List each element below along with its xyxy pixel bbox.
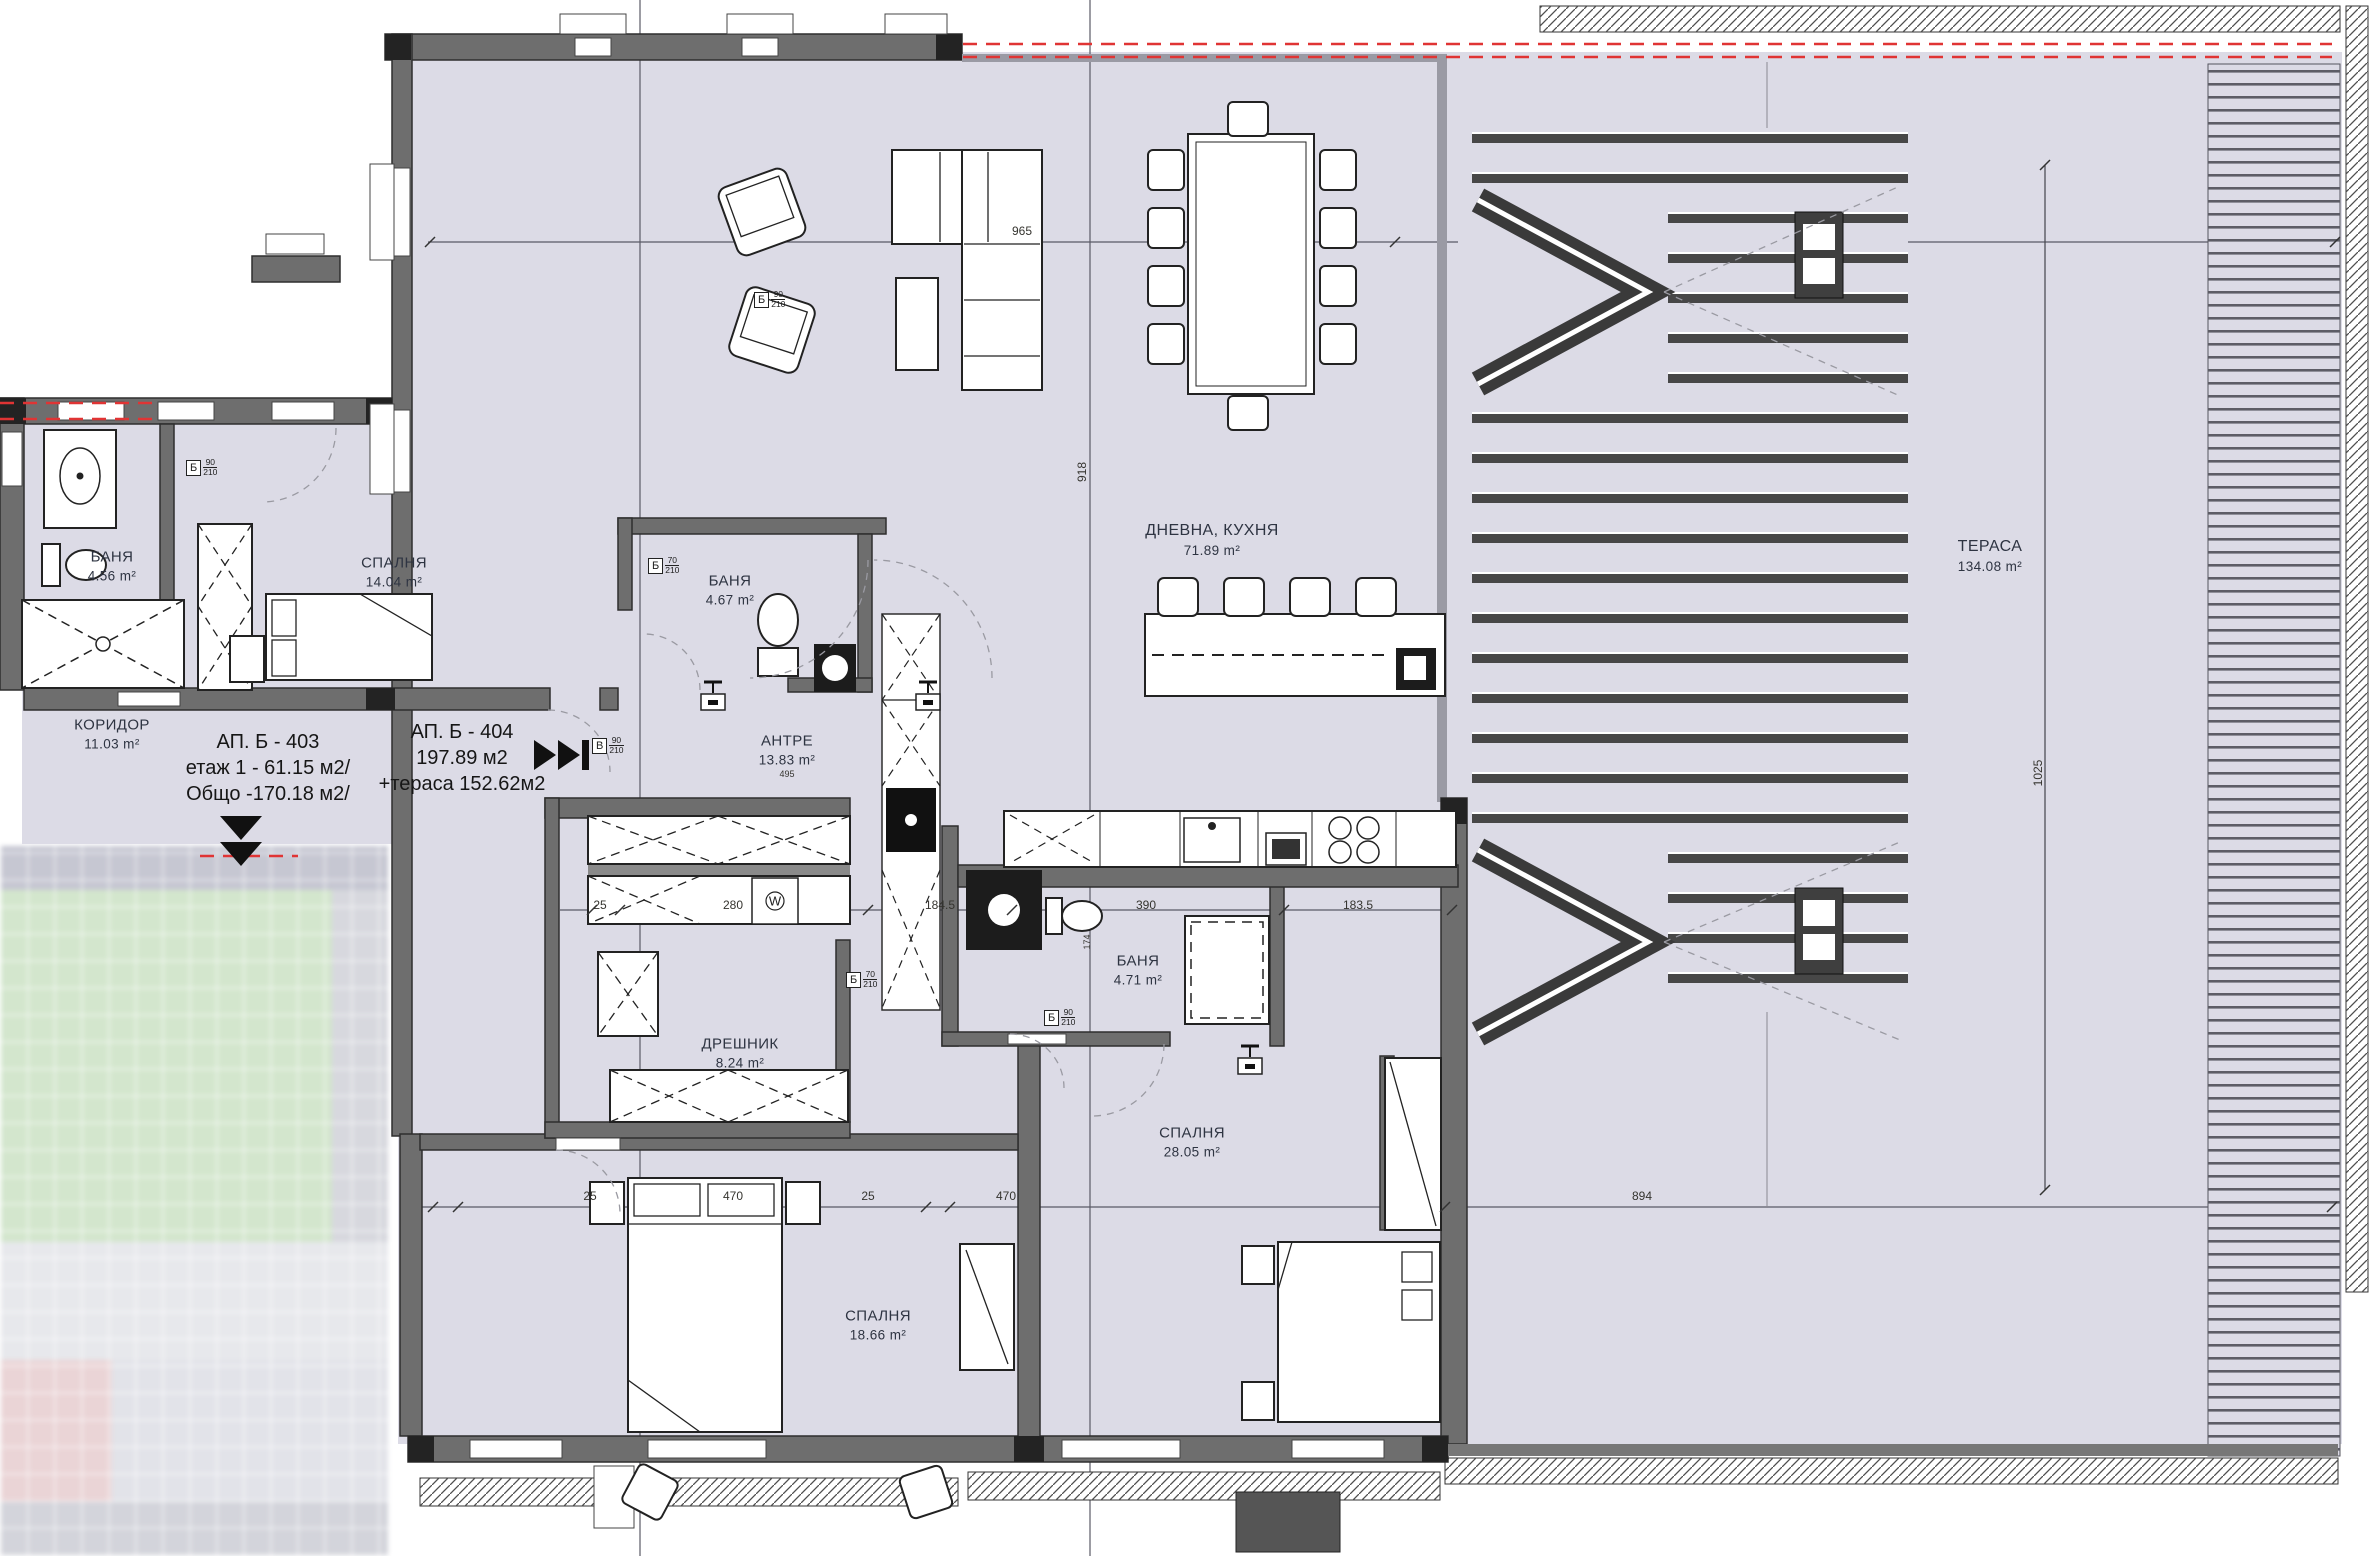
room-label-dnevna: ДНЕВНА, КУХНЯ 71.89 m² (1145, 521, 1279, 559)
door-tag: Б 70210 (846, 970, 877, 989)
room-area: 11.03 m² (74, 735, 150, 753)
room-name: БАНЯ (1117, 952, 1160, 969)
room-label-banya2: БАНЯ 4.67 m² (706, 571, 755, 608)
dim-894: 894 (1632, 1189, 1652, 1203)
chair (1320, 150, 1356, 190)
room-name: СПАЛНЯ (361, 554, 427, 571)
bar-stool (1290, 578, 1330, 616)
apartment-total-area: Общо -170.18 м2/ (186, 781, 350, 807)
toilet (1062, 901, 1102, 931)
chair (1228, 396, 1268, 430)
room-area: 134.08 m² (1958, 558, 2023, 576)
toilet (758, 594, 798, 646)
room-area: 14.04 m² (361, 573, 427, 591)
room-name: КОРИДОР (74, 716, 150, 733)
door-height: 210 (665, 566, 679, 575)
floor-plan-sheet: КОРИДОР 11.03 m² СПАЛНЯ 14.04 m² БАНЯ 4.… (0, 0, 2374, 1556)
plan-drawing (0, 0, 2374, 1556)
bar-stool (1158, 578, 1198, 616)
room-name: ДНЕВНА, КУХНЯ (1145, 522, 1279, 539)
door-letter: Б (754, 292, 769, 308)
coffee-table (896, 278, 938, 370)
dim-470: 470 (996, 1189, 1016, 1203)
door-letter: Б (1044, 1010, 1059, 1026)
door-tag: Б 90210 (754, 290, 785, 309)
room-area: 13.83 m² (759, 751, 815, 769)
chair (1320, 266, 1356, 306)
room-name: ТЕРАСА (1958, 538, 2023, 555)
room-name: СПАЛНЯ (1159, 1124, 1225, 1141)
chair (1148, 324, 1184, 364)
room-area: 4.56 m² (88, 567, 137, 585)
apartment-terrace-area: +тераса 152.62м2 (379, 771, 546, 797)
toilet-tank (42, 544, 60, 586)
room-area: 4.67 m² (706, 591, 755, 609)
door-tag: В 90210 (592, 736, 624, 755)
chair (1320, 324, 1356, 364)
room-name: СПАЛНЯ (845, 1307, 911, 1324)
floor-areas (22, 52, 2342, 1444)
cooktop-burner (1329, 841, 1351, 863)
room-label-spalnya28: СПАЛНЯ 28.05 m² (1159, 1123, 1225, 1160)
apartment-404-label: АП. Б - 404 197.89 м2 +тераса 152.62м2 (379, 719, 546, 797)
cooktop-burner (1357, 841, 1379, 863)
cooktop-burner (1329, 817, 1351, 839)
down-arrow-icon (220, 842, 262, 866)
dim-280: 280 (723, 898, 743, 912)
chair (898, 1464, 953, 1519)
nightstand (1242, 1246, 1274, 1284)
closet (588, 876, 850, 924)
dim-495: 495 (779, 769, 794, 779)
bar-stool (1224, 578, 1264, 616)
door-tag: Б 90210 (1044, 1008, 1075, 1027)
door-height: 210 (1061, 1018, 1075, 1027)
door-tag: Б 90210 (186, 458, 217, 477)
room-label-spalnya18: СПАЛНЯ 18.66 m² (845, 1306, 911, 1343)
toilet-seat (758, 648, 798, 676)
door-letter: В (592, 738, 607, 754)
door-height: 210 (863, 980, 877, 989)
room-area: 8.24 m² (701, 1054, 778, 1072)
door-letter: Б (186, 460, 201, 476)
door-letter: Б (846, 972, 861, 988)
dim-25: 25 (861, 1189, 874, 1203)
apartment-id: АП. Б - 403 (186, 729, 350, 755)
dim-918: 918 (1075, 462, 1089, 482)
room-area: 18.66 m² (845, 1326, 911, 1344)
door-height: 210 (203, 468, 217, 477)
cooktop-burner (1357, 817, 1379, 839)
bar-stool (1356, 578, 1396, 616)
apartment-floor-area: 197.89 м2 (379, 745, 546, 771)
room-label-banya3: БАНЯ 4.71 m² (1114, 951, 1163, 988)
nightstand (230, 636, 264, 682)
dim-470: 470 (723, 1189, 743, 1203)
sofa (962, 150, 1042, 390)
dim-1025: 1025 (2031, 760, 2045, 787)
dim-25: 25 (583, 1189, 596, 1203)
room-area: 71.89 m² (1145, 542, 1279, 560)
room-name: БАНЯ (91, 548, 134, 565)
door-height: 210 (771, 300, 785, 309)
room-label-antre: АНТРЕ 13.83 m² (759, 731, 815, 768)
door-letter: Б (648, 558, 663, 574)
dim-25: 25 (593, 898, 606, 912)
room-name: ДРЕШНИК (701, 1035, 778, 1052)
room-area: 4.71 m² (1114, 971, 1163, 989)
door-tag: Б 70210 (648, 556, 679, 575)
nightstand (786, 1182, 820, 1224)
room-label-terasa: ТЕРАСА 134.08 m² (1958, 537, 2023, 575)
dim-965: 965 (1012, 224, 1032, 238)
chair (1148, 150, 1184, 190)
nightstand (1242, 1382, 1274, 1420)
dim-183-5: 183.5 (1343, 898, 1373, 912)
room-area: 28.05 m² (1159, 1143, 1225, 1161)
chair (1148, 266, 1184, 306)
chair (1228, 102, 1268, 136)
dim-174: 174 (1082, 934, 1092, 949)
dim-184-5: 184.5 (925, 898, 955, 912)
room-label-koridor: КОРИДОР 11.03 m² (74, 715, 150, 752)
room-label-spalnya14: СПАЛНЯ 14.04 m² (361, 553, 427, 590)
chair (1320, 208, 1356, 248)
room-label-dreshnik: ДРЕШНИК 8.24 m² (701, 1034, 778, 1071)
door-height: 210 (609, 746, 623, 755)
closet (610, 1070, 848, 1122)
apartment-floor-area: етаж 1 - 61.15 м2/ (186, 755, 350, 781)
dim-390: 390 (1136, 898, 1156, 912)
chair (1148, 208, 1184, 248)
room-label-banya1: БАНЯ 4.56 m² (88, 547, 137, 584)
room-name: БАНЯ (709, 572, 752, 589)
toilet-tank (1046, 898, 1062, 934)
closet (588, 816, 850, 864)
room-name: АНТРЕ (761, 732, 813, 749)
apartment-403-label: АП. Б - 403 етаж 1 - 61.15 м2/ Общо -170… (186, 729, 350, 807)
apartment-id: АП. Б - 404 (379, 719, 546, 745)
washer-label: W (769, 894, 781, 909)
